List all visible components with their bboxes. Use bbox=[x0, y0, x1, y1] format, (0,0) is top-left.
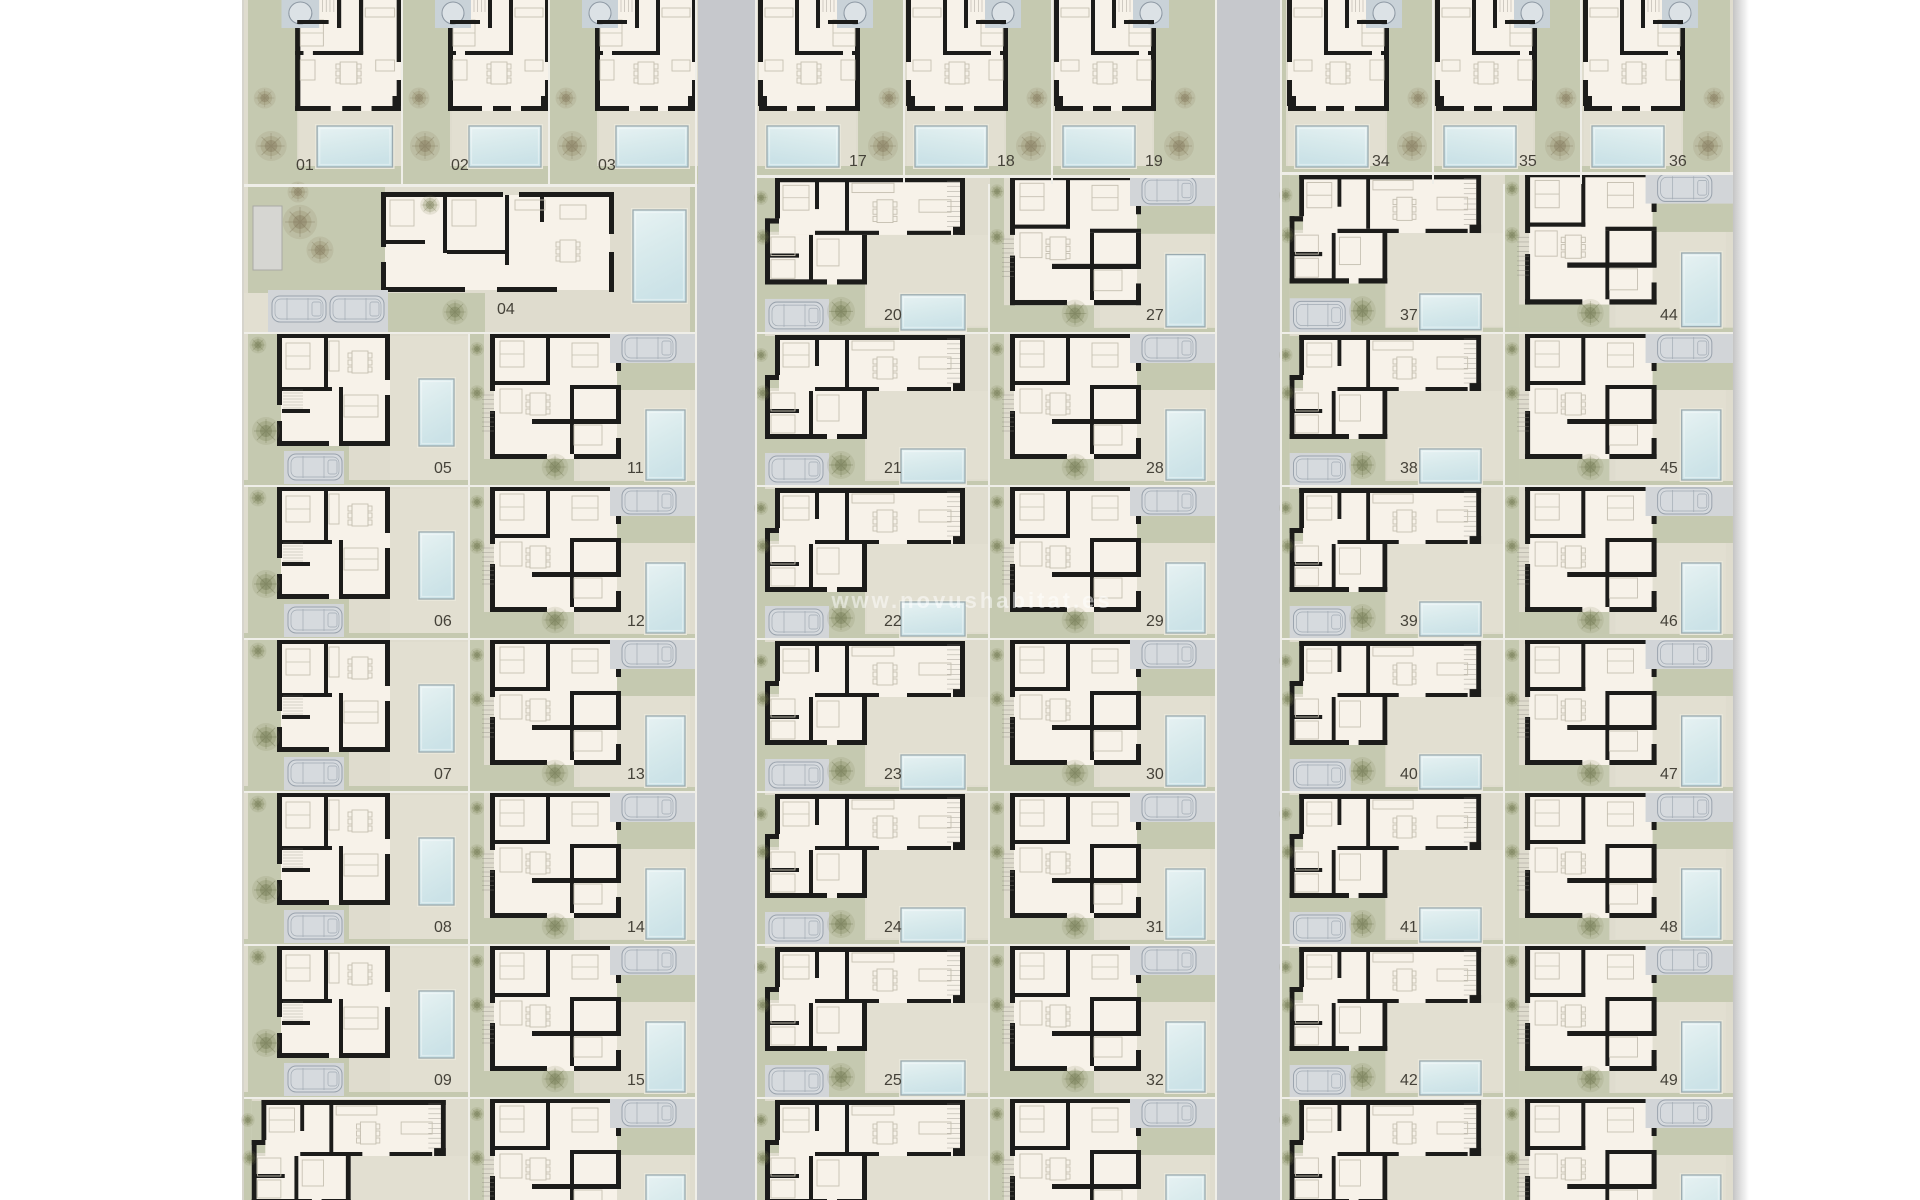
svg-text:29: 29 bbox=[1146, 613, 1164, 630]
svg-text:47: 47 bbox=[1660, 766, 1678, 783]
svg-text:19: 19 bbox=[1145, 153, 1163, 170]
svg-text:02: 02 bbox=[451, 157, 469, 174]
svg-text:36: 36 bbox=[1669, 153, 1687, 170]
svg-text:21: 21 bbox=[884, 460, 902, 477]
svg-text:41: 41 bbox=[1400, 919, 1418, 936]
svg-text:32: 32 bbox=[1146, 1072, 1164, 1089]
svg-text:40: 40 bbox=[1400, 766, 1418, 783]
svg-text:15: 15 bbox=[627, 1072, 645, 1089]
svg-text:12: 12 bbox=[627, 613, 645, 630]
svg-text:22: 22 bbox=[884, 613, 902, 630]
svg-text:42: 42 bbox=[1400, 1072, 1418, 1089]
svg-text:34: 34 bbox=[1372, 153, 1390, 170]
svg-text:24: 24 bbox=[884, 919, 902, 936]
svg-text:13: 13 bbox=[627, 766, 645, 783]
svg-text:49: 49 bbox=[1660, 1072, 1678, 1089]
svg-text:04: 04 bbox=[497, 301, 515, 318]
svg-text:39: 39 bbox=[1400, 613, 1418, 630]
svg-text:09: 09 bbox=[434, 1072, 452, 1089]
svg-text:23: 23 bbox=[884, 766, 902, 783]
svg-text:27: 27 bbox=[1146, 307, 1164, 324]
svg-text:18: 18 bbox=[997, 153, 1015, 170]
svg-text:06: 06 bbox=[434, 613, 452, 630]
svg-text:www.novushabitat.es: www.novushabitat.es bbox=[830, 588, 1112, 613]
svg-text:45: 45 bbox=[1660, 460, 1678, 477]
svg-text:08: 08 bbox=[434, 919, 452, 936]
svg-text:30: 30 bbox=[1146, 766, 1164, 783]
svg-text:31: 31 bbox=[1146, 919, 1164, 936]
svg-text:14: 14 bbox=[627, 919, 645, 936]
svg-text:46: 46 bbox=[1660, 613, 1678, 630]
svg-text:03: 03 bbox=[598, 157, 616, 174]
svg-text:28: 28 bbox=[1146, 460, 1164, 477]
svg-text:48: 48 bbox=[1660, 919, 1678, 936]
svg-text:05: 05 bbox=[434, 460, 452, 477]
svg-text:01: 01 bbox=[296, 157, 314, 174]
svg-text:20: 20 bbox=[884, 307, 902, 324]
svg-text:25: 25 bbox=[884, 1072, 902, 1089]
svg-text:44: 44 bbox=[1660, 307, 1678, 324]
svg-text:37: 37 bbox=[1400, 307, 1418, 324]
svg-text:11: 11 bbox=[627, 460, 644, 477]
svg-text:17: 17 bbox=[849, 153, 867, 170]
svg-text:07: 07 bbox=[434, 766, 452, 783]
svg-text:35: 35 bbox=[1519, 153, 1537, 170]
svg-text:38: 38 bbox=[1400, 460, 1418, 477]
